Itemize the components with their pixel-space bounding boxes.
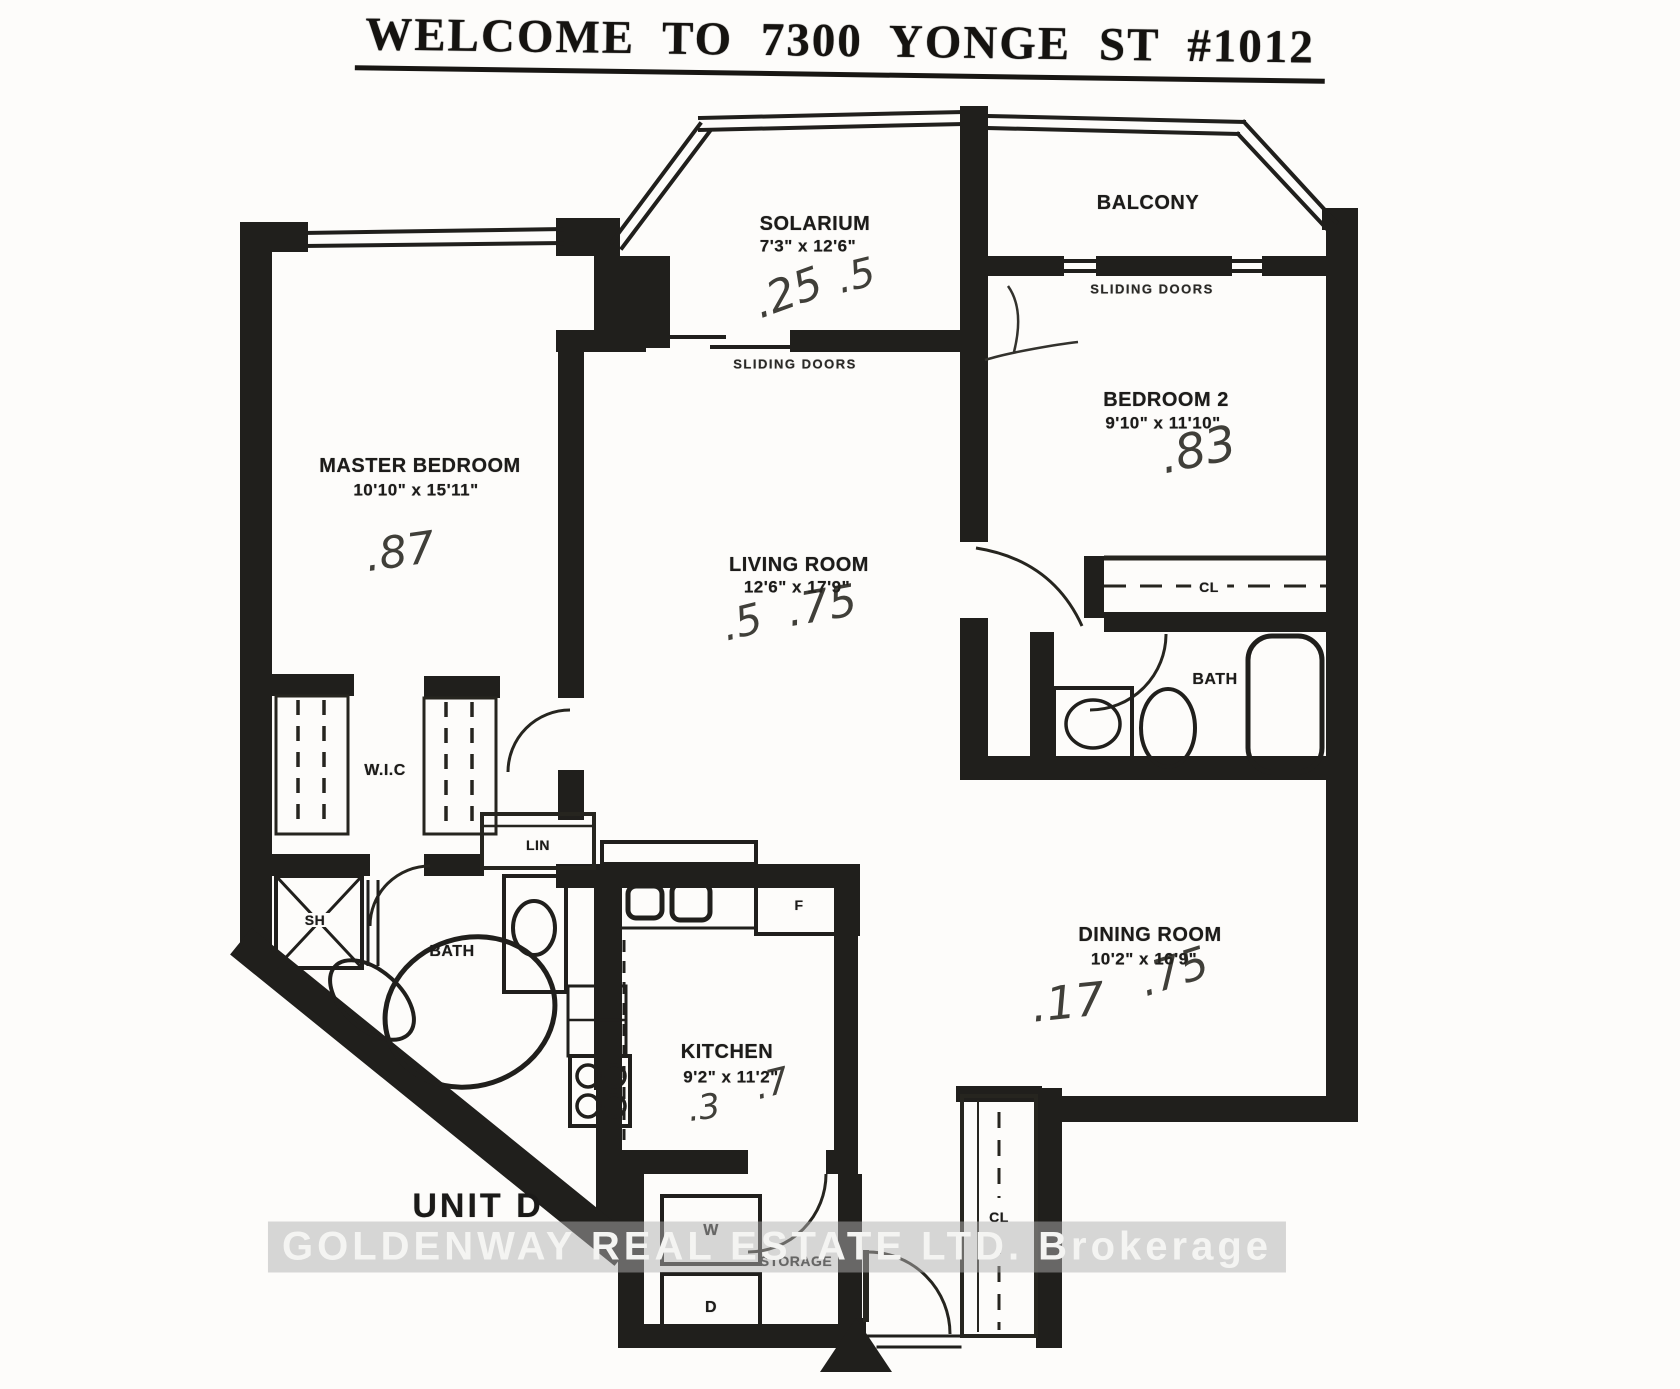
room-label-balcony: BALCONY (1097, 193, 1199, 213)
brokerage-watermark: GOLDENWAY REAL ESTATE LTD. Brokerage (268, 1222, 1286, 1273)
room-label-living-room: LIVING ROOM (729, 555, 869, 575)
toilet (1141, 689, 1195, 767)
room-dims-solarium: 7'3" x 12'6" (760, 238, 856, 255)
room-label-bedroom-2: BEDROOM 2 (1103, 390, 1229, 410)
handwritten-mark: .3 (685, 1086, 723, 1130)
kitchen-sink (628, 886, 662, 918)
bath-label: BATH (1192, 672, 1237, 688)
handwritten-mark: .17 (1029, 971, 1107, 1032)
shower-label: SH (297, 913, 333, 927)
pen-squiggle (985, 286, 1078, 360)
kitchen-sink (672, 884, 710, 920)
main-bath-door (1090, 634, 1166, 710)
unit-label: UNIT D (412, 1189, 543, 1223)
bedroom2-door (976, 548, 1082, 626)
wic-label: W.I.C (364, 763, 406, 779)
kitchen-counter (602, 842, 756, 864)
room-label-master-bedroom: MASTER BEDROOM (319, 456, 520, 476)
bathtub (1248, 636, 1322, 772)
floorplan-sheet: WELCOME TO 7300 YONGE ST #1012 (0, 0, 1680, 1389)
master-bedroom-door (508, 710, 570, 772)
room-label-solarium: SOLARIUM (760, 214, 871, 234)
sink (1066, 700, 1120, 748)
closet-label: CL (1191, 580, 1227, 594)
bath-label: BATH (429, 944, 474, 960)
room-dims-master-bedroom: 10'10" x 15'11" (353, 482, 478, 499)
sliding-doors-label: SLIDING DOORS (733, 358, 857, 371)
dryer-label: D (705, 1300, 717, 1316)
handwritten-mark: .87 (362, 522, 438, 582)
room-label-kitchen: KITCHEN (681, 1042, 773, 1062)
floorplan-drawing (0, 0, 1680, 1389)
fridge-label: F (794, 898, 803, 912)
sliding-doors-label: SLIDING DOORS (1090, 283, 1214, 296)
linen-label: LIN (518, 838, 558, 852)
